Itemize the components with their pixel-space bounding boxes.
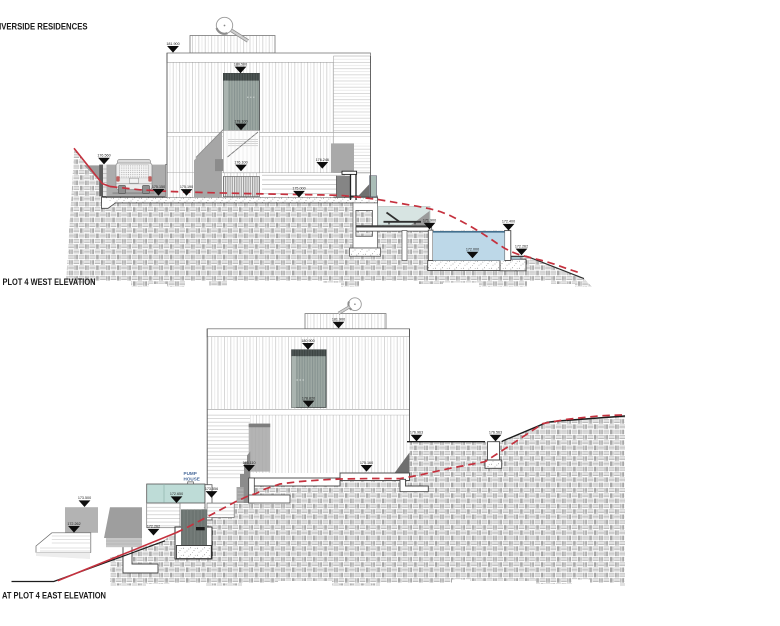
svg-text:HOUSE: HOUSE (184, 476, 200, 481)
svg-text:178.820: 178.820 (302, 396, 315, 400)
svg-text:175.190: 175.190 (180, 185, 193, 189)
svg-text:172.000: 172.000 (466, 248, 479, 252)
svg-text:180.900: 180.900 (301, 339, 314, 343)
svg-text:173.556: 173.556 (205, 487, 218, 491)
svg-text:175.000: 175.000 (292, 187, 305, 191)
svg-text:AT PLOT 4 EAST ELEVATION: AT PLOT 4 EAST ELEVATION (2, 589, 106, 600)
svg-text:176.246: 176.246 (316, 158, 329, 162)
svg-text:176.100: 176.100 (234, 160, 247, 164)
svg-text:176.963: 176.963 (410, 431, 423, 435)
svg-text:181.900: 181.900 (332, 318, 345, 322)
svg-text:RIVERSIDE RESIDENCES: RIVERSIDE RESIDENCES (0, 21, 88, 32)
svg-text:175.110: 175.110 (242, 461, 255, 465)
svg-text:176.563: 176.563 (489, 431, 502, 435)
svg-text:178.100: 178.100 (234, 119, 247, 123)
svg-text:172.650: 172.650 (170, 492, 183, 496)
svg-text:172.262: 172.262 (147, 525, 160, 529)
svg-text:172.262: 172.262 (515, 244, 528, 248)
svg-text:175.150: 175.150 (152, 185, 165, 189)
svg-text:181.900: 181.900 (166, 42, 179, 46)
svg-text:172.400: 172.400 (502, 220, 515, 224)
svg-text:172.262: 172.262 (67, 522, 80, 526)
svg-text:171.900: 171.900 (423, 219, 436, 223)
svg-text:173.500: 173.500 (78, 496, 91, 500)
svg-text:PLOT 4 WEST ELEVATION: PLOT 4 WEST ELEVATION (3, 276, 96, 287)
svg-text:176.560: 176.560 (97, 154, 110, 158)
svg-text:PUMP: PUMP (184, 471, 197, 476)
svg-text:175.160: 175.160 (360, 461, 373, 465)
svg-text:180.500: 180.500 (234, 62, 247, 66)
